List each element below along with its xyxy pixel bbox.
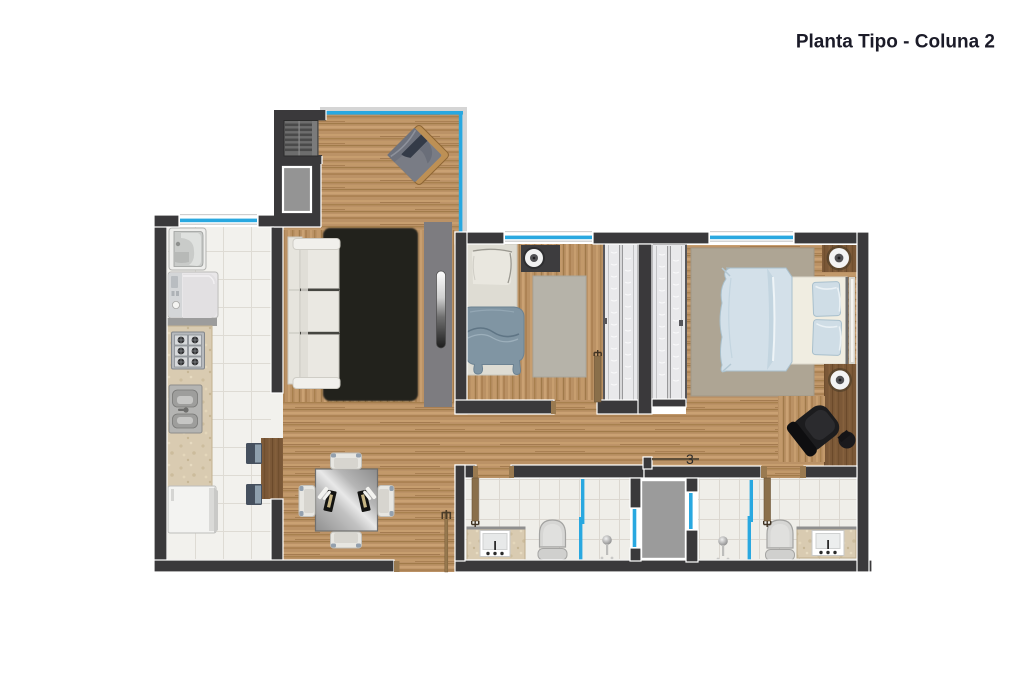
svg-text:3: 3	[686, 451, 694, 467]
svg-text:Planta Tipo - Coluna 2: Planta Tipo - Coluna 2	[796, 32, 995, 53]
